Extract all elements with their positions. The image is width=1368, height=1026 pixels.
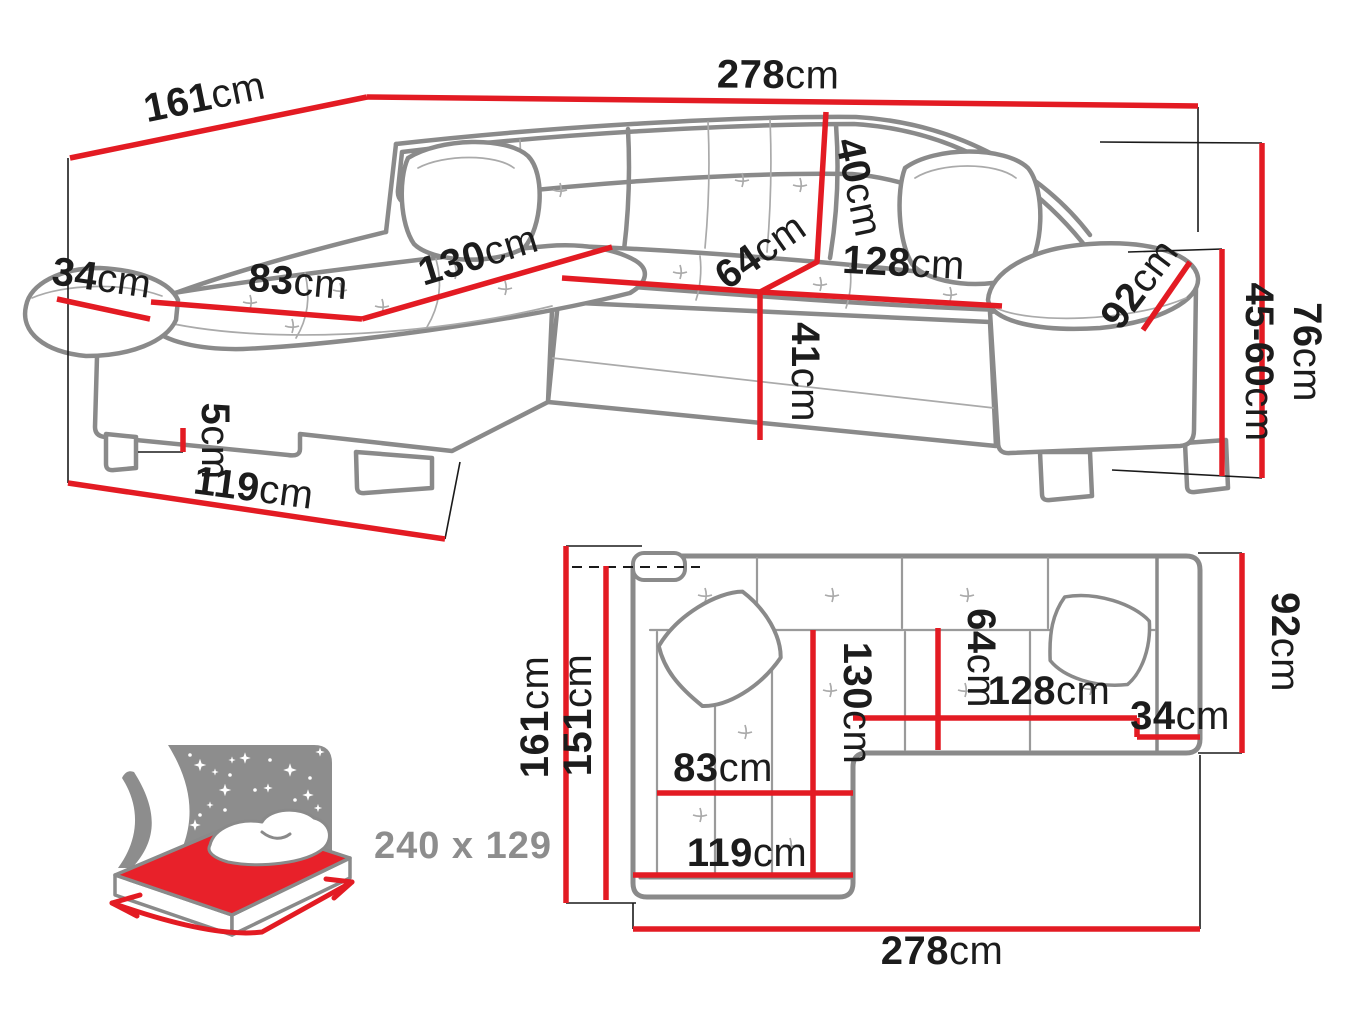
dim-label-inner-depth: 151cm [556, 654, 600, 777]
dim-label-seat-width: 128cm [988, 669, 1111, 713]
dim-label-total-depth: 161cm [513, 656, 557, 779]
headboard-curve [118, 771, 152, 868]
dim-label-chaise-front-width: 119cm [191, 458, 316, 517]
bed-icon [112, 745, 352, 935]
sleeping-function-icon: 240 x 129 [112, 745, 552, 935]
plan-view: 161cm 151cm 130cm 64cm 128cm 34cm 92cm 8… [513, 546, 1307, 973]
dim-label-seat-height: 41cm [783, 322, 827, 422]
dim-label-armrest-length: 92cm [1263, 592, 1307, 692]
dim-label-back-width: 278cm [717, 52, 840, 97]
dim-label-chaise-seat-width: 83cm [246, 256, 349, 309]
bed-size-label: 240 x 129 [374, 825, 552, 867]
dim-label-total-width: 278cm [881, 929, 1004, 973]
diagram-canvas: 161cm 278cm 34cm 83cm 130cm 40cm 64cm 12… [0, 0, 1368, 1026]
dim-label-total-height: 76cm [1285, 302, 1329, 402]
dim-label-chaise-length: 130cm [835, 642, 879, 765]
dim-label-armrest-width: 34cm [1130, 694, 1230, 738]
extension-line [445, 462, 460, 539]
dim-label-seat-width: 128cm [841, 238, 966, 288]
dim-label-armrest-height: 45-60cm [1237, 282, 1281, 441]
dim-label-chaise-seat-width: 83cm [673, 746, 773, 790]
dim-line-back-width [367, 97, 1198, 106]
perspective-view: 161cm 278cm 34cm 83cm 130cm 40cm 64cm 12… [25, 52, 1329, 539]
extension-line [1100, 142, 1262, 143]
dim-label-chaise-front-width: 119cm [687, 831, 807, 875]
dimension-diagram: 161cm 278cm 34cm 83cm 130cm 40cm 64cm 12… [0, 0, 1368, 1026]
